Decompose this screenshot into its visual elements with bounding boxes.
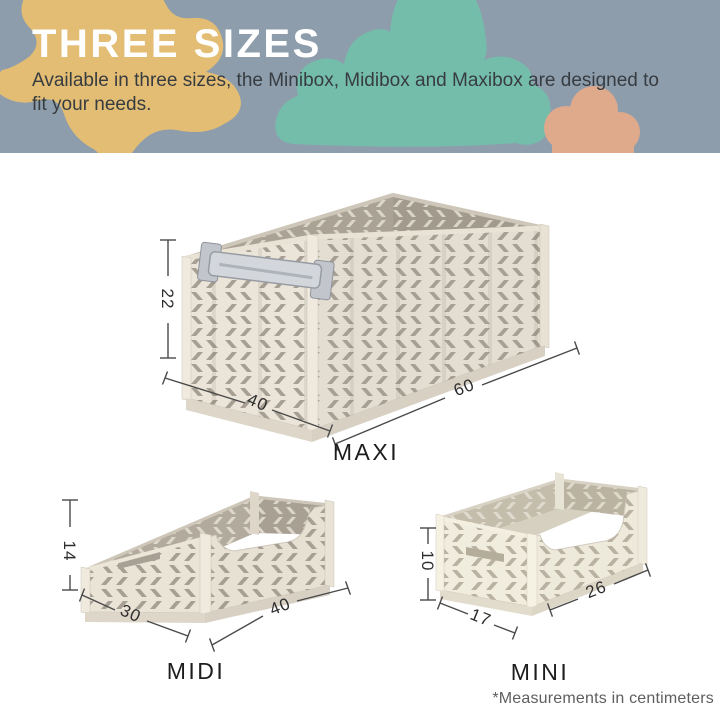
- infographic-page: THREE SIZES Available in three sizes, th…: [0, 0, 720, 720]
- header-banner: THREE SIZES Available in three sizes, th…: [0, 0, 720, 153]
- page-subtitle: Available in three sizes, the Minibox, M…: [32, 69, 677, 116]
- midi-height-dimension: 14: [60, 500, 79, 590]
- maxi-crate: 22 40 60 MAXI: [158, 195, 579, 465]
- midi-crate: 14 30 40 MIDI: [60, 491, 350, 684]
- mini-width-value: 17: [468, 605, 495, 630]
- midi-label: MIDI: [167, 658, 226, 684]
- mini-crate-figure: 10 17 26 MINI: [400, 460, 720, 705]
- mini-height-value: 10: [418, 551, 437, 572]
- mini-crate: 10 17 26 MINI: [418, 472, 650, 685]
- midi-crate-figure: 14 30 40 MIDI: [30, 455, 375, 705]
- mini-label: MINI: [511, 659, 570, 685]
- maxi-crate-figure: 22 40 60 MAXI: [120, 158, 620, 473]
- midi-height-value: 14: [60, 541, 79, 562]
- crate-right-wall: [312, 228, 545, 430]
- mini-height-dimension: 10: [418, 528, 437, 600]
- measurements-footnote: *Measurements in centimeters: [492, 690, 714, 708]
- page-title: THREE SIZES: [32, 22, 322, 66]
- maxi-height-value: 22: [158, 289, 177, 310]
- maxi-height-dimension: 22: [158, 240, 177, 358]
